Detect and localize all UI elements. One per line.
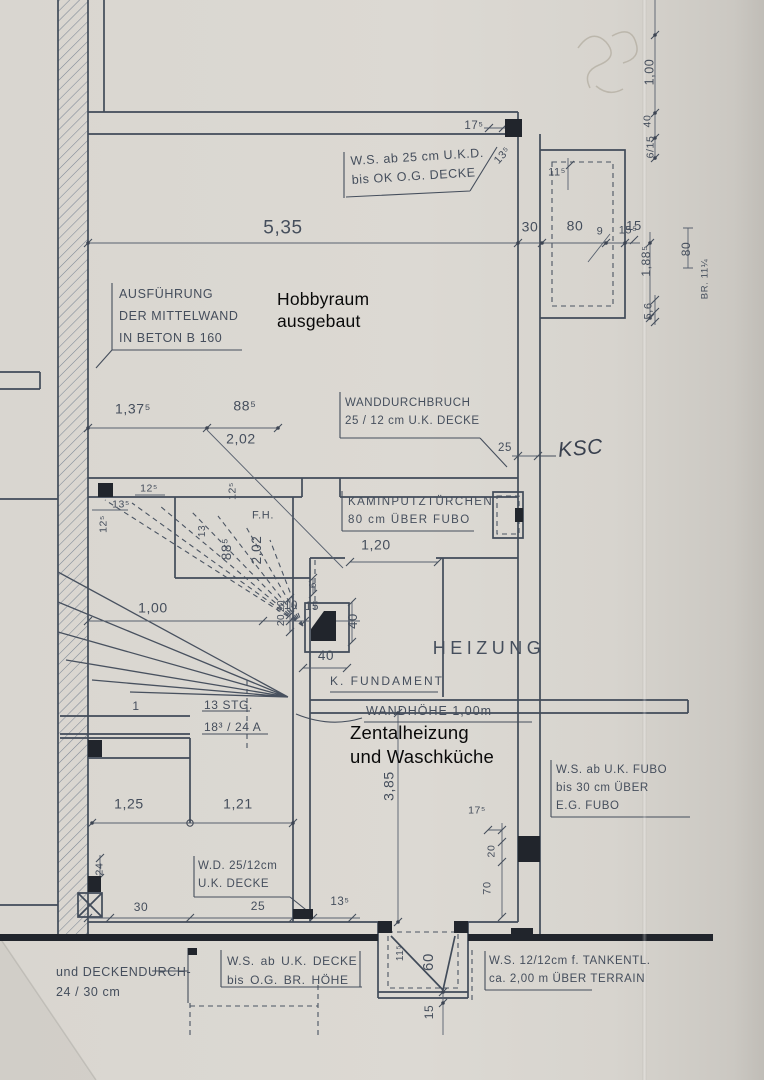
dim-385-room: 3,85 <box>381 771 398 801</box>
dim-15-shaft: 15 <box>422 1005 436 1020</box>
dim-9: 9 <box>597 225 604 238</box>
staircase <box>58 572 288 697</box>
note-deckendurchbruch: und DECKENDURCH- 24 / 30 cm <box>56 962 191 1002</box>
label-zentralheizung-overlay: Zentalheizung und Waschküche <box>350 721 494 768</box>
dim-6-15-right: 6/15 <box>645 136 658 159</box>
handwritten-ksc: KSC <box>557 434 604 463</box>
dim-125-stair-b: 12⁵ <box>98 515 111 533</box>
dim-120: 1,20 <box>361 537 391 554</box>
hatched-wall <box>58 0 88 935</box>
note-ws-decke-og: W.S. ab U.K. DECKE bis O.G. BR. HÖHE <box>227 952 357 989</box>
dim-125-bottom: 1,25 <box>114 796 144 813</box>
note-ws-tankentlueftung: W.S. 12/12cm f. TANKENTL. ca. 2,00 m ÜBE… <box>489 953 651 989</box>
note-ws-ukd: W.S. ab 25 cm U.K.D. bis OK O.G. DECKE <box>350 144 486 191</box>
dim-135-bottom: 13⁵ <box>330 896 349 910</box>
dim-25-bottom: 25 <box>251 899 266 913</box>
dim-br-right: BR. 11¼ <box>699 259 710 299</box>
dim-100-stairs: 1,00 <box>138 600 168 617</box>
note-stairs-13stg: 13 STG. 18³ / 24 A <box>204 694 261 738</box>
dim-30-top: 30 <box>522 219 539 236</box>
dim-1375: 1,37⁵ <box>115 401 151 418</box>
dim-24-left: 24 <box>94 863 107 876</box>
dim-175-topwall: 17⁵ <box>464 120 483 134</box>
dim-155-bay: 15⁵ <box>619 224 638 237</box>
note-ausfuehrung-mittelwand: AUSFÜHRUNG DER MITTELWAND IN BETON B 160 <box>119 284 239 350</box>
dim-56-right: 5,6 <box>642 302 655 319</box>
walls <box>0 0 688 998</box>
note-k-fundament: K. FUNDAMENT <box>330 674 444 688</box>
dim-5-35: 5,35 <box>263 218 302 241</box>
dim-885-vert: 88⁵ <box>219 538 235 560</box>
dim-20-b: 20 <box>276 614 288 626</box>
note-ws-fubo: W.S. ab U.K. FUBO bis 30 cm ÜBER E.G. FU… <box>556 762 667 815</box>
dim-885-mid: 88⁵ <box>233 398 256 415</box>
dim-15-stairs: 15 <box>305 601 319 615</box>
dim-13-stair: 13 <box>197 525 209 537</box>
dim-60-shaft: 60 <box>420 953 438 971</box>
dim-125-stair-c: 12⁵ <box>227 482 240 500</box>
dim-6-chimney: 6 <box>308 582 320 588</box>
dim-115-bay: 11⁵ <box>548 166 566 179</box>
dim-20-east: 20 <box>486 845 499 858</box>
dim-135-stair: 13⁵ <box>112 499 130 512</box>
note-wanddurchbruch: WANDDURCHBRUCH 25 / 12 cm U.K. DECKE <box>345 395 480 431</box>
dim-125-stair-a: 12⁵ <box>140 483 158 496</box>
dim-115-shaft: 11⁵ <box>395 945 407 961</box>
dim-10: 10 <box>284 600 298 614</box>
dim-30-bottom: 30 <box>134 900 149 914</box>
dim-1885-bay: 1,88⁵ <box>639 245 653 276</box>
label-heizung-room: HEIZUNG <box>433 638 546 660</box>
dim-80-top: 80 <box>567 218 584 235</box>
note-wandhoehe: WANDHÖHE 1,00m <box>366 704 492 719</box>
note-wd-decke: W.D. 25/12cm U.K. DECKE <box>198 858 277 894</box>
paper-creases <box>0 938 96 1080</box>
dim-175-east: 17⁵ <box>468 805 486 818</box>
dim-121-bottom: 1,21 <box>223 796 253 813</box>
dim-40-vert: 40 <box>345 613 361 629</box>
dim-202-vert: 2,02 <box>249 536 265 565</box>
dim-100-right: 1,00 <box>643 59 658 86</box>
note-kaminputztuerchen: KAMINPUTZTÜRCHEN 80 cm ÜBER FUBO <box>348 494 493 530</box>
dim-202-mid: 2,02 <box>226 431 256 448</box>
dim-80-right: 80 <box>679 242 693 257</box>
label-fh: F.H. <box>252 509 274 522</box>
floor-plan-blueprint: W.S. ab 25 cm U.K.D. bis OK O.G. DECKE A… <box>0 0 764 1080</box>
paper-fold-crease <box>642 0 647 1080</box>
dim-40-horiz: 40 <box>318 648 334 664</box>
dim-25-wall: 25 <box>498 442 512 456</box>
label-stair-number-1: 1 <box>132 699 139 713</box>
dim-70-east: 70 <box>481 881 494 894</box>
dim-40-right: 40 <box>642 115 655 128</box>
label-hobbyraum-overlay: Hobbyraum ausgebaut <box>277 288 369 333</box>
pencil-scribble <box>578 32 637 93</box>
chimney-flue-symbol <box>311 611 336 641</box>
note-leaders <box>96 147 690 1003</box>
